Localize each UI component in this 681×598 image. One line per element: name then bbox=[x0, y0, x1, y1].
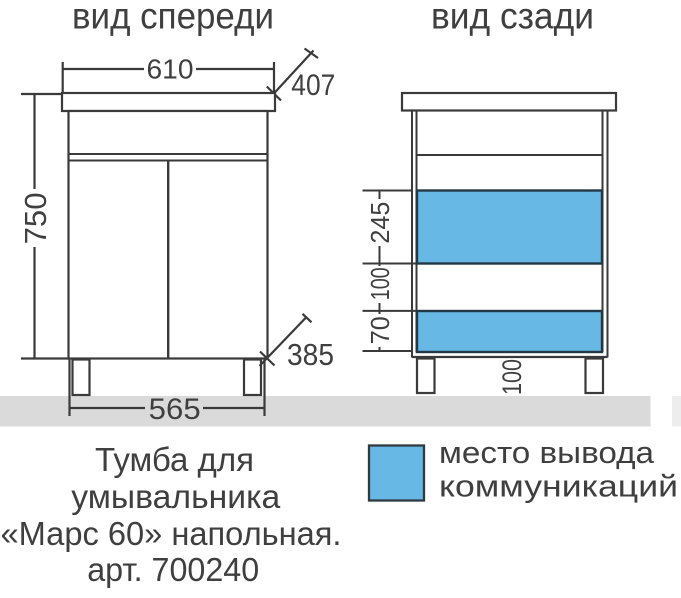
svg-text:565: 565 bbox=[149, 393, 201, 426]
svg-text:100: 100 bbox=[365, 267, 395, 300]
svg-text:«Марс 60» напольная.: «Марс 60» напольная. bbox=[1, 515, 342, 552]
svg-text:Тумба для: Тумба для bbox=[95, 441, 254, 478]
svg-text:245: 245 bbox=[365, 202, 395, 244]
svg-text:407: 407 bbox=[291, 69, 335, 102]
svg-text:610: 610 bbox=[147, 54, 194, 85]
svg-text:коммуникаций: коммуникаций bbox=[439, 469, 678, 504]
svg-text:вид спереди: вид спереди bbox=[72, 0, 274, 37]
svg-text:арт. 700240: арт. 700240 bbox=[87, 551, 259, 588]
svg-text:100: 100 bbox=[497, 359, 527, 395]
svg-text:умывальника: умывальника bbox=[71, 478, 281, 515]
svg-text:вид сзади: вид сзади bbox=[431, 0, 594, 37]
svg-text:70: 70 bbox=[365, 316, 395, 344]
svg-text:место вывода: место вывода bbox=[439, 435, 655, 470]
svg-text:385: 385 bbox=[287, 337, 334, 372]
svg-text:750: 750 bbox=[18, 192, 53, 244]
